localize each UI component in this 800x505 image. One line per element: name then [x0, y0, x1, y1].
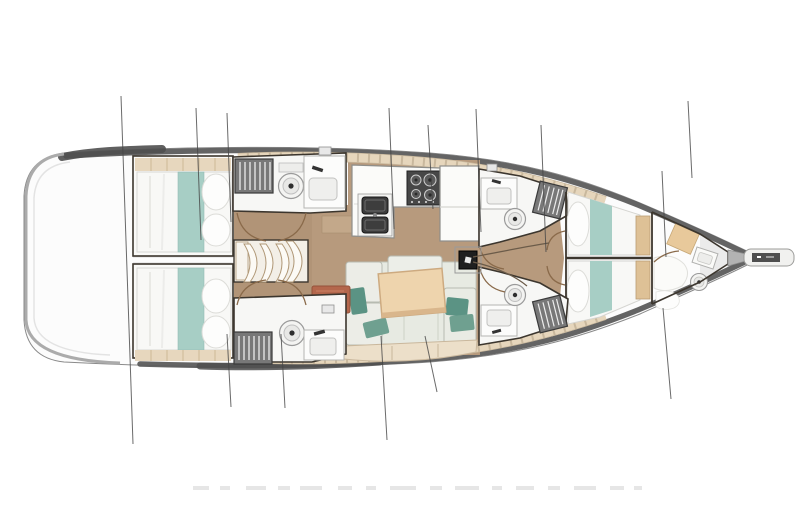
- vent-icon: [322, 305, 334, 313]
- pillow: [567, 202, 589, 246]
- fridge-cabinet: [440, 166, 479, 241]
- nightstand: [636, 216, 650, 255]
- nightstand: [636, 261, 650, 299]
- teal-pillow: [449, 314, 475, 332]
- aft-cabin-starboard: [133, 264, 233, 361]
- pillow: [567, 270, 589, 312]
- galley-sink-icon: [362, 217, 388, 233]
- faint-bottom-marks: [193, 486, 642, 490]
- pillow: [202, 174, 230, 210]
- vent-icon: [487, 164, 497, 171]
- aft-head-starboard: [234, 294, 346, 364]
- aft-cabin-port: [133, 156, 233, 256]
- vent-icon: [319, 147, 331, 155]
- sink-icon: [309, 178, 337, 200]
- hanging-locker-icon: [235, 159, 273, 193]
- pillow: [202, 316, 230, 348]
- salon: [344, 256, 477, 361]
- pillow: [202, 214, 230, 246]
- sink-icon: [487, 310, 511, 326]
- hanging-locker-icon: [234, 332, 272, 364]
- bowsprit: [744, 249, 794, 266]
- teal-bed-runner: [590, 199, 612, 255]
- sink-icon: [487, 188, 511, 204]
- teal-bed-runner: [590, 261, 612, 317]
- yacht-floor-plan: [0, 0, 800, 505]
- aft-head-port: [233, 147, 346, 213]
- sink-icon: [310, 338, 336, 355]
- companionway-stairs: [234, 240, 308, 282]
- teal-pillow: [445, 297, 469, 317]
- pillow: [202, 279, 230, 313]
- teal-bed-runner: [178, 268, 204, 350]
